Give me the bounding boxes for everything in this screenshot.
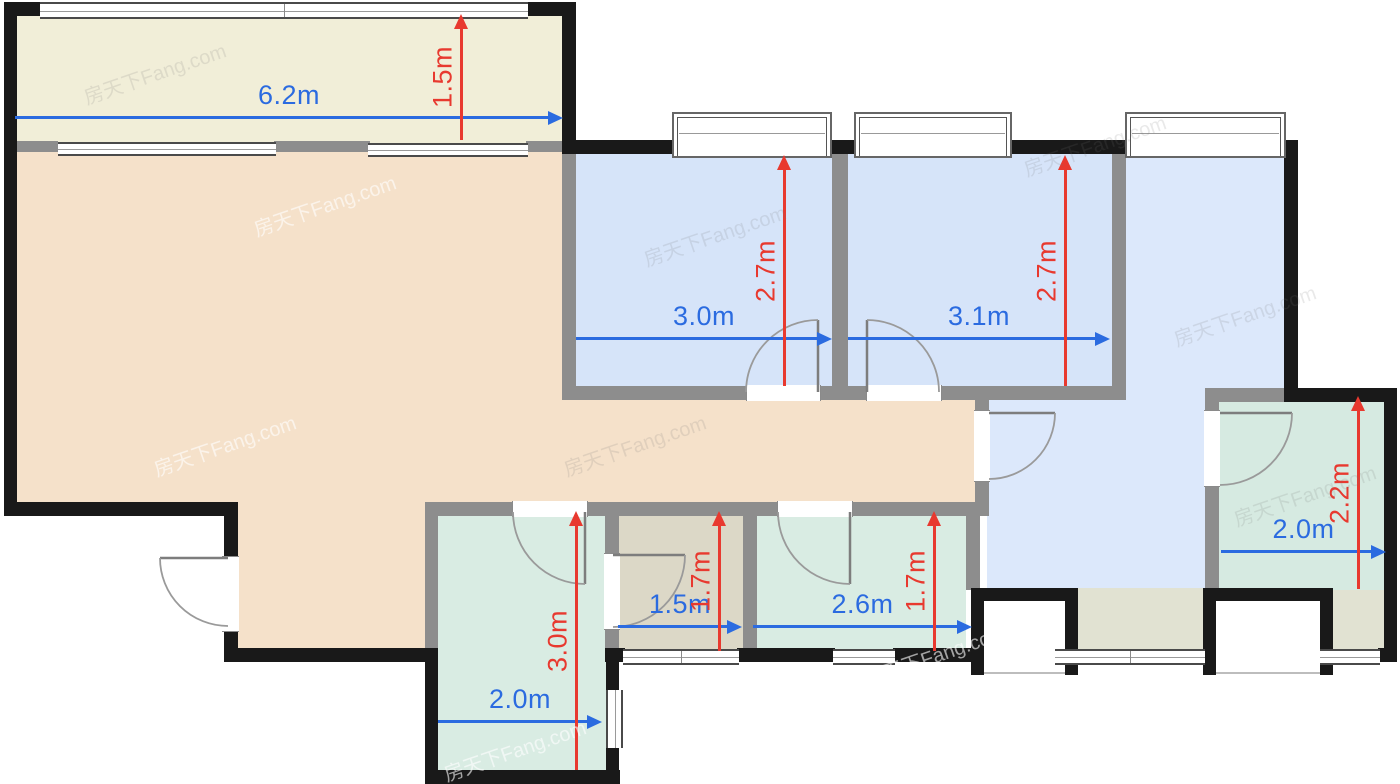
bedroom-2-door-arc xyxy=(867,320,939,392)
bedroom-1-door-arc xyxy=(746,320,818,392)
dimension-label: 2.6m xyxy=(831,589,893,620)
dimension-label: 2.0m xyxy=(489,684,551,715)
floor-plan: 6.2m 1.5m 3.0m 2.7m 3.1m 2.7m 2.0m 2.2m … xyxy=(0,0,1400,784)
dimension-label: 1.7m xyxy=(686,550,717,612)
entry-door-arc xyxy=(160,558,228,626)
dimension-label: 3.0m xyxy=(673,301,735,332)
storage-door-arc xyxy=(1220,413,1292,485)
dimension-label: 2.7m xyxy=(1032,239,1063,301)
kitchen-door-arc xyxy=(989,413,1055,479)
dimension-label: 1.5m xyxy=(428,46,459,108)
dimension-label: 3.1m xyxy=(948,301,1010,332)
dimension-label: 2.7m xyxy=(751,239,782,301)
dimension-label: 6.2m xyxy=(258,80,320,111)
utility-door-arc xyxy=(778,512,850,584)
dimension-label: 3.0m xyxy=(543,609,574,671)
dimension-label: 1.7m xyxy=(901,550,932,612)
dimension-label: 2.2m xyxy=(1325,461,1356,523)
